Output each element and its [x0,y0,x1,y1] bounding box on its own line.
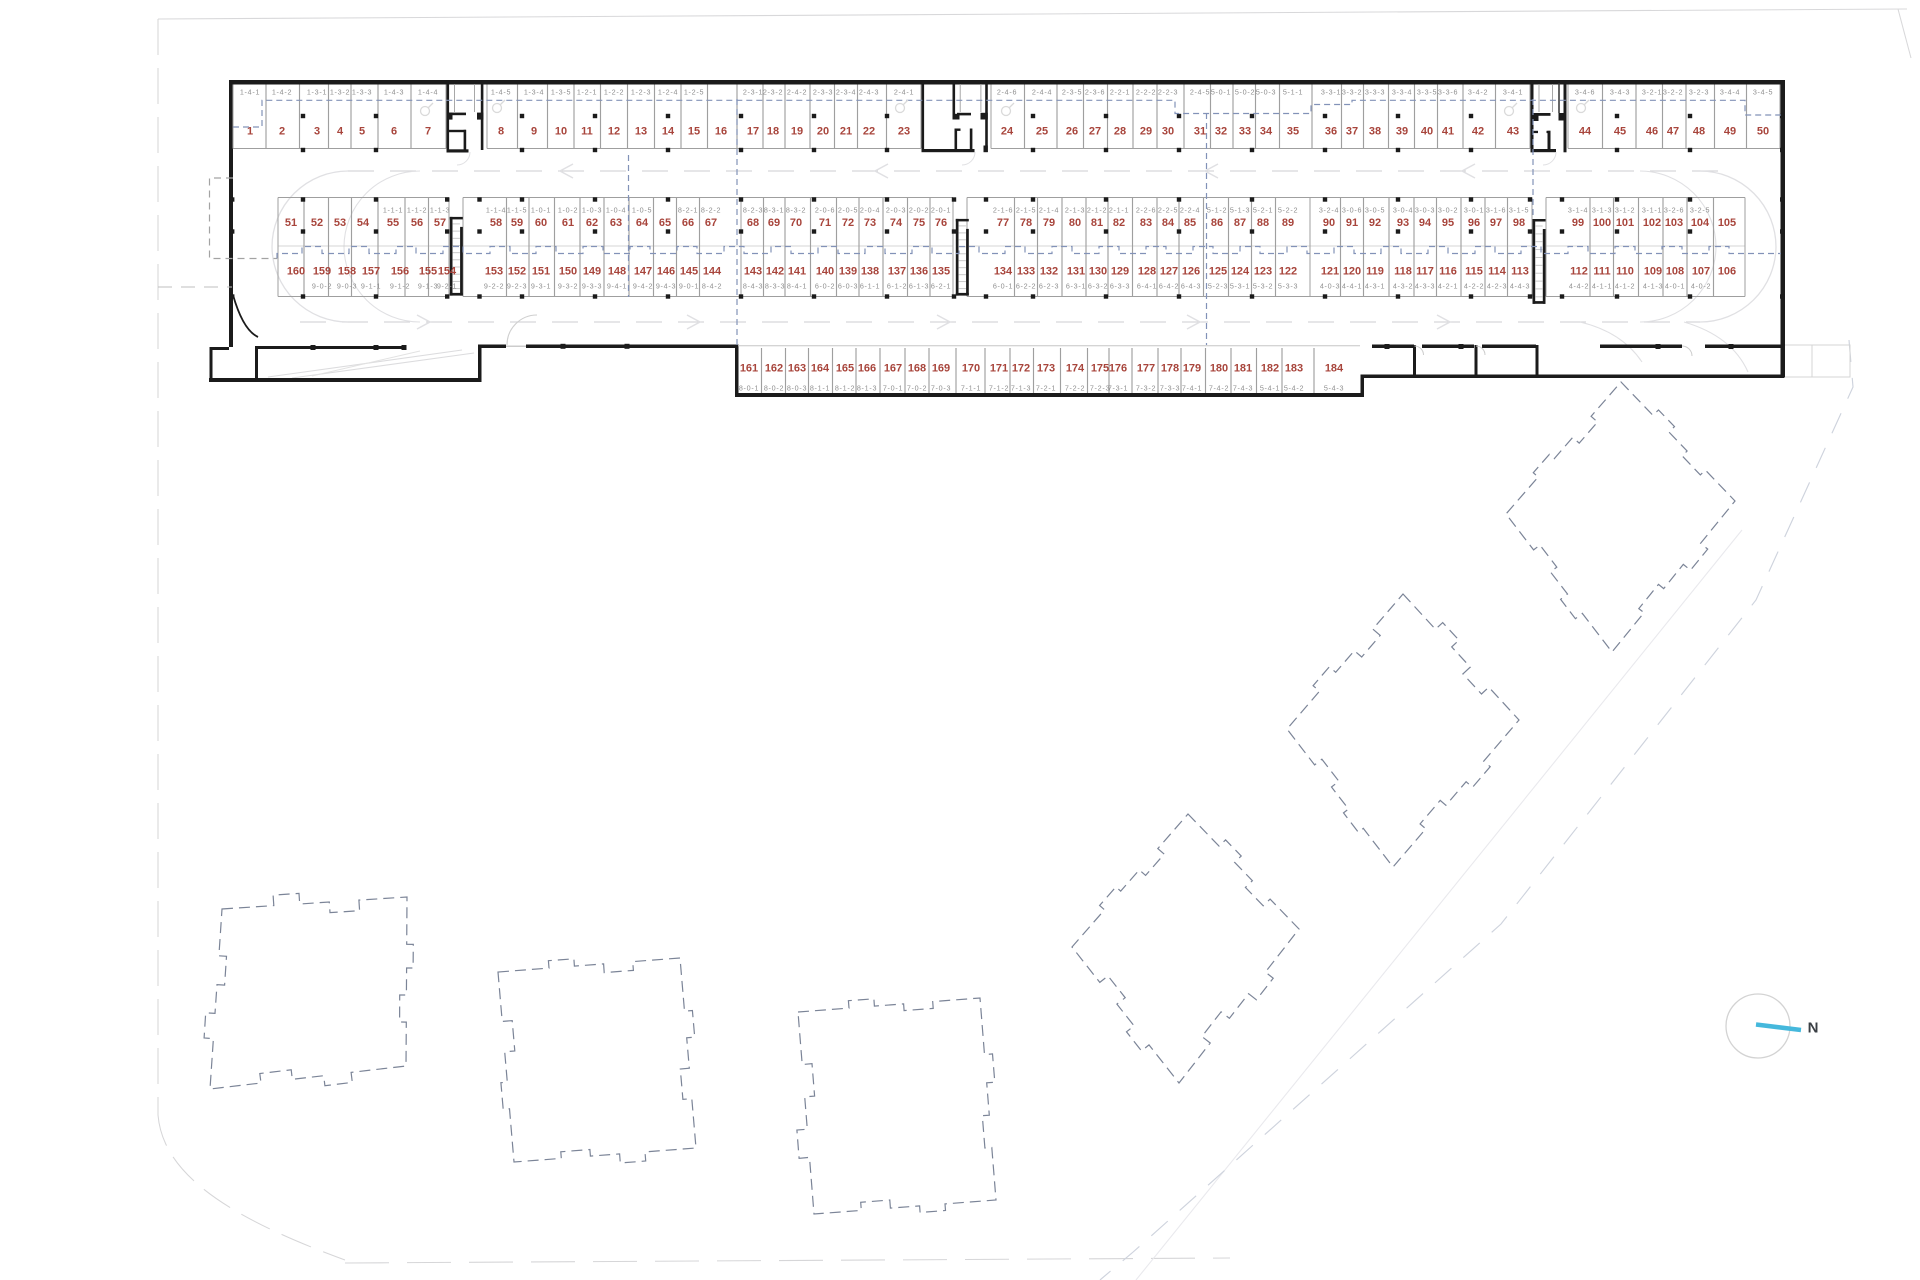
svg-text:141: 141 [788,266,806,278]
svg-text:5-2-2: 5-2-2 [1278,206,1298,215]
svg-text:7-0-1: 7-0-1 [883,384,903,393]
svg-text:7-0-2: 7-0-2 [907,384,927,393]
svg-text:5-3-1: 5-3-1 [1230,282,1250,291]
svg-text:9-2-1: 9-2-1 [437,282,457,291]
svg-text:3-3-3: 3-3-3 [1365,88,1385,97]
svg-text:6-1-1: 6-1-1 [860,282,880,291]
svg-text:106: 106 [1718,266,1736,278]
svg-text:4-1-3: 4-1-3 [1643,282,1663,291]
svg-text:2-3-3: 2-3-3 [813,88,833,97]
svg-text:3-3-1: 3-3-1 [1321,88,1341,97]
svg-text:1-4-1: 1-4-1 [240,88,260,97]
svg-text:9-0-3: 9-0-3 [337,282,357,291]
svg-text:2-4-4: 2-4-4 [1032,88,1052,97]
svg-text:103: 103 [1665,217,1683,229]
svg-text:89: 89 [1282,217,1294,229]
svg-text:1-0-1: 1-0-1 [531,206,551,215]
svg-text:112: 112 [1570,266,1588,278]
svg-text:8-0-3: 8-0-3 [787,384,807,393]
svg-text:6-3-2: 6-3-2 [1088,282,1108,291]
svg-text:6-3-3: 6-3-3 [1110,282,1130,291]
svg-text:3-4-4: 3-4-4 [1720,88,1740,97]
svg-text:170: 170 [962,363,980,375]
svg-text:7-4-3: 7-4-3 [1233,384,1253,393]
svg-text:63: 63 [610,217,622,229]
svg-text:28: 28 [1114,126,1126,138]
svg-text:101: 101 [1616,217,1634,229]
svg-text:3-3-6: 3-3-6 [1438,88,1458,97]
svg-text:24: 24 [1001,126,1014,138]
svg-text:1-4-2: 1-4-2 [272,88,292,97]
svg-text:143: 143 [744,266,762,278]
svg-text:131: 131 [1067,266,1085,278]
svg-text:7-4-2: 7-4-2 [1209,384,1229,393]
svg-text:4-4-2: 4-4-2 [1569,282,1589,291]
svg-text:56: 56 [411,217,423,229]
svg-text:6: 6 [391,126,397,138]
svg-text:32: 32 [1215,126,1227,138]
svg-text:2-3-2: 2-3-2 [763,88,783,97]
svg-text:124: 124 [1231,266,1250,278]
svg-text:164: 164 [811,363,830,375]
svg-text:148: 148 [608,266,626,278]
svg-text:2-3-6: 2-3-6 [1085,88,1105,97]
svg-text:153: 153 [485,266,503,278]
svg-text:3-4-6: 3-4-6 [1575,88,1595,97]
svg-text:10: 10 [555,126,567,138]
svg-text:3-1-1: 3-1-1 [1642,206,1662,215]
svg-text:12: 12 [608,126,620,138]
svg-text:6-4-2: 6-4-2 [1159,282,1179,291]
svg-text:92: 92 [1369,217,1381,229]
svg-text:4-1-1: 4-1-1 [1592,282,1612,291]
svg-text:2-2-2: 2-2-2 [1136,88,1156,97]
svg-text:7-4-1: 7-4-1 [1182,384,1202,393]
svg-text:48: 48 [1693,126,1705,138]
svg-text:64: 64 [636,217,649,229]
svg-text:2-4-3: 2-4-3 [859,88,879,97]
svg-text:132: 132 [1040,266,1058,278]
svg-text:8-4-2: 8-4-2 [702,282,722,291]
svg-text:6-0-3: 6-0-3 [838,282,858,291]
svg-text:5-0-1: 5-0-1 [1211,88,1231,97]
svg-text:109: 109 [1644,266,1662,278]
svg-text:165: 165 [836,363,854,375]
svg-text:29: 29 [1140,126,1152,138]
svg-text:96: 96 [1468,217,1480,229]
svg-text:116: 116 [1439,266,1457,278]
svg-text:8-1-2: 8-1-2 [835,384,855,393]
svg-text:7-3-3: 7-3-3 [1160,384,1180,393]
svg-text:9-2-2: 9-2-2 [484,282,504,291]
svg-text:1-2-5: 1-2-5 [684,88,704,97]
svg-text:8-2-1: 8-2-1 [678,206,698,215]
svg-text:9-1-2: 9-1-2 [390,282,410,291]
svg-text:100: 100 [1593,217,1611,229]
svg-text:77: 77 [997,217,1009,229]
svg-text:8-4-1: 8-4-1 [787,282,807,291]
svg-text:174: 174 [1066,363,1085,375]
svg-text:11: 11 [581,126,593,138]
svg-text:3-4-3: 3-4-3 [1610,88,1630,97]
svg-text:5-4-2: 5-4-2 [1284,384,1304,393]
svg-text:1-0-2: 1-0-2 [558,206,578,215]
svg-text:3-1-5: 3-1-5 [1509,206,1529,215]
svg-text:84: 84 [1162,217,1175,229]
svg-text:7-1-1: 7-1-1 [961,384,981,393]
svg-text:2-0-3: 2-0-3 [886,206,906,215]
svg-text:59: 59 [511,217,523,229]
svg-text:3-0-1: 3-0-1 [1464,206,1484,215]
svg-text:135: 135 [932,266,950,278]
svg-text:159: 159 [313,266,331,278]
svg-text:5-0-2: 5-0-2 [1235,88,1255,97]
svg-text:81: 81 [1091,217,1103,229]
svg-text:1-1-2: 1-1-2 [407,206,427,215]
svg-text:149: 149 [583,266,601,278]
svg-text:9-0-2: 9-0-2 [312,282,332,291]
svg-text:1-2-3: 1-2-3 [631,88,651,97]
svg-text:4-4-3: 4-4-3 [1510,282,1530,291]
svg-text:3-2-2: 3-2-2 [1663,88,1683,97]
svg-text:113: 113 [1511,266,1529,278]
svg-text:157: 157 [362,266,380,278]
svg-text:2-4-1: 2-4-1 [894,88,914,97]
svg-text:1-3-5: 1-3-5 [551,88,571,97]
svg-text:4-0-3: 4-0-3 [1320,282,1340,291]
svg-text:122: 122 [1279,266,1297,278]
svg-text:137: 137 [888,266,906,278]
svg-text:158: 158 [338,266,356,278]
svg-text:120: 120 [1343,266,1361,278]
svg-text:178: 178 [1161,363,1179,375]
svg-text:43: 43 [1507,126,1519,138]
svg-text:104: 104 [1691,217,1710,229]
svg-text:99: 99 [1572,217,1584,229]
svg-text:179: 179 [1183,363,1201,375]
svg-text:93: 93 [1397,217,1409,229]
svg-text:7-1-3: 7-1-3 [1011,384,1031,393]
svg-text:163: 163 [788,363,806,375]
svg-text:74: 74 [890,217,903,229]
svg-text:114: 114 [1488,266,1507,278]
svg-text:8-1-3: 8-1-3 [857,384,877,393]
svg-text:127: 127 [1160,266,1178,278]
svg-text:31: 31 [1194,126,1206,138]
svg-text:7: 7 [425,126,431,138]
svg-text:91: 91 [1346,217,1358,229]
svg-text:2-4-6: 2-4-6 [997,88,1017,97]
svg-text:6-1-2: 6-1-2 [887,282,907,291]
svg-text:5-1-3: 5-1-3 [1230,206,1250,215]
svg-text:13: 13 [635,126,647,138]
svg-text:9-3-2: 9-3-2 [558,282,578,291]
svg-text:8-1-1: 8-1-1 [810,384,830,393]
svg-text:51: 51 [285,217,297,229]
svg-text:19: 19 [791,126,803,138]
svg-text:60: 60 [535,217,547,229]
svg-text:35: 35 [1287,126,1299,138]
svg-text:1-1-3: 1-1-3 [430,206,450,215]
svg-text:171: 171 [990,363,1008,375]
svg-text:130: 130 [1089,266,1107,278]
svg-text:154: 154 [438,266,457,278]
svg-text:75: 75 [913,217,925,229]
svg-text:162: 162 [765,363,783,375]
svg-text:105: 105 [1718,217,1736,229]
svg-text:86: 86 [1211,217,1223,229]
svg-text:3-2-4: 3-2-4 [1319,206,1339,215]
svg-text:2-0-2: 2-0-2 [909,206,929,215]
svg-text:123: 123 [1254,266,1272,278]
svg-text:2-1-6: 2-1-6 [993,206,1013,215]
svg-text:151: 151 [532,266,550,278]
svg-text:1-3-1: 1-3-1 [307,88,327,97]
svg-text:94: 94 [1419,217,1432,229]
svg-text:46: 46 [1646,126,1658,138]
svg-text:14: 14 [662,126,675,138]
svg-text:70: 70 [790,217,802,229]
svg-text:134: 134 [994,266,1013,278]
svg-text:68: 68 [747,217,759,229]
svg-text:2-2-1: 2-2-1 [1110,88,1130,97]
svg-text:140: 140 [816,266,834,278]
svg-text:39: 39 [1396,126,1408,138]
svg-text:23: 23 [898,126,910,138]
svg-text:4-0-2: 4-0-2 [1691,282,1711,291]
svg-text:2-4-5: 2-4-5 [1190,88,1210,97]
svg-text:34: 34 [1260,126,1273,138]
svg-text:161: 161 [740,363,758,375]
svg-text:41: 41 [1442,126,1454,138]
svg-text:1-0-3: 1-0-3 [582,206,602,215]
svg-text:1-1-1: 1-1-1 [383,206,403,215]
svg-text:33: 33 [1239,126,1251,138]
svg-text:8-2-3: 8-2-3 [743,206,763,215]
svg-text:9-1-3: 9-1-3 [418,282,438,291]
svg-text:62: 62 [586,217,598,229]
svg-text:5-3-2: 5-3-2 [1253,282,1273,291]
svg-text:2-1-5: 2-1-5 [1016,206,1036,215]
svg-text:2-1-1: 2-1-1 [1109,206,1129,215]
svg-text:182: 182 [1261,363,1279,375]
svg-text:150: 150 [559,266,577,278]
svg-text:1-3-4: 1-3-4 [524,88,544,97]
svg-text:5: 5 [359,126,365,138]
svg-text:6-2-2: 6-2-2 [1016,282,1036,291]
svg-text:79: 79 [1043,217,1055,229]
svg-text:9-3-1: 9-3-1 [531,282,551,291]
svg-text:78: 78 [1020,217,1032,229]
svg-text:3-0-5: 3-0-5 [1365,206,1385,215]
svg-text:1-1-4: 1-1-4 [486,206,506,215]
svg-text:53: 53 [334,217,346,229]
svg-text:7-3-2: 7-3-2 [1136,384,1156,393]
svg-text:5-4-3: 5-4-3 [1324,384,1344,393]
svg-text:118: 118 [1394,266,1412,278]
svg-text:1-2-1: 1-2-1 [577,88,597,97]
svg-text:177: 177 [1137,363,1155,375]
svg-text:45: 45 [1614,126,1626,138]
svg-text:4-3-2: 4-3-2 [1393,282,1413,291]
svg-text:138: 138 [861,266,879,278]
svg-text:2-0-5: 2-0-5 [838,206,858,215]
svg-text:115: 115 [1465,266,1483,278]
svg-text:3-1-2: 3-1-2 [1615,206,1635,215]
svg-text:2-1-2: 2-1-2 [1087,206,1107,215]
svg-text:1-1-5: 1-1-5 [507,206,527,215]
svg-text:8-3-3: 8-3-3 [765,282,785,291]
svg-text:1-4-4: 1-4-4 [418,88,438,97]
svg-text:1-4-5: 1-4-5 [491,88,511,97]
svg-text:8-0-2: 8-0-2 [764,384,784,393]
svg-text:145: 145 [680,266,698,278]
svg-text:1-2-4: 1-2-4 [658,88,678,97]
svg-text:5-3-3: 5-3-3 [1278,282,1298,291]
svg-text:176: 176 [1109,363,1127,375]
svg-text:9-4-3: 9-4-3 [656,282,676,291]
svg-text:4-3-1: 4-3-1 [1365,282,1385,291]
svg-text:82: 82 [1113,217,1125,229]
svg-text:8-4-3: 8-4-3 [743,282,763,291]
svg-text:167: 167 [884,363,902,375]
svg-text:6-4-1: 6-4-1 [1137,282,1157,291]
svg-text:9-0-1: 9-0-1 [679,282,699,291]
svg-text:42: 42 [1472,126,1484,138]
svg-text:22: 22 [863,126,875,138]
svg-text:85: 85 [1184,217,1196,229]
svg-text:3-4-1: 3-4-1 [1503,88,1523,97]
svg-text:3-2-6: 3-2-6 [1664,206,1684,215]
svg-text:3-4-2: 3-4-2 [1468,88,1488,97]
svg-text:30: 30 [1162,126,1174,138]
svg-text:128: 128 [1138,266,1156,278]
svg-text:102: 102 [1643,217,1661,229]
svg-text:2-2-3: 2-2-3 [1158,88,1178,97]
svg-text:144: 144 [703,266,722,278]
svg-text:6-0-2: 6-0-2 [815,282,835,291]
svg-text:2-2-5: 2-2-5 [1158,206,1178,215]
svg-text:119: 119 [1366,266,1384,278]
svg-text:3-0-2: 3-0-2 [1438,206,1458,215]
svg-text:4-2-3: 4-2-3 [1487,282,1507,291]
svg-text:129: 129 [1111,266,1129,278]
svg-text:5-4-1: 5-4-1 [1260,384,1280,393]
svg-text:71: 71 [819,217,831,229]
svg-text:25: 25 [1036,126,1048,138]
svg-text:8-0-1: 8-0-1 [739,384,759,393]
svg-text:3: 3 [314,126,320,138]
svg-text:3-0-3: 3-0-3 [1415,206,1435,215]
svg-text:2-2-6: 2-2-6 [1136,206,1156,215]
svg-text:27: 27 [1089,126,1101,138]
svg-text:126: 126 [1182,266,1200,278]
svg-text:9-1-1: 9-1-1 [361,282,381,291]
svg-text:88: 88 [1257,217,1269,229]
svg-text:18: 18 [767,126,779,138]
svg-text:2-1-4: 2-1-4 [1039,206,1059,215]
svg-text:55: 55 [387,217,399,229]
svg-text:1: 1 [247,126,253,138]
svg-text:50: 50 [1757,126,1769,138]
svg-text:61: 61 [562,217,574,229]
svg-text:142: 142 [766,266,784,278]
svg-text:3-4-5: 3-4-5 [1753,88,1773,97]
svg-text:3-1-3: 3-1-3 [1592,206,1612,215]
svg-text:95: 95 [1442,217,1454,229]
svg-text:169: 169 [932,363,950,375]
svg-text:183: 183 [1285,363,1303,375]
svg-text:7-2-1: 7-2-1 [1036,384,1056,393]
svg-text:8-3-1: 8-3-1 [764,206,784,215]
svg-text:54: 54 [357,217,370,229]
svg-text:184: 184 [1325,363,1344,375]
svg-text:7-0-3: 7-0-3 [931,384,951,393]
svg-text:172: 172 [1012,363,1030,375]
svg-text:111: 111 [1593,266,1610,278]
svg-text:73: 73 [864,217,876,229]
svg-text:181: 181 [1234,363,1252,375]
svg-text:38: 38 [1369,126,1381,138]
svg-text:52: 52 [311,217,323,229]
svg-text:7-3-1: 7-3-1 [1108,384,1128,393]
svg-text:97: 97 [1490,217,1502,229]
svg-text:156: 156 [391,266,409,278]
svg-text:26: 26 [1066,126,1078,138]
svg-text:125: 125 [1209,266,1227,278]
svg-text:2-0-1: 2-0-1 [931,206,951,215]
svg-text:90: 90 [1323,217,1335,229]
svg-text:66: 66 [682,217,694,229]
svg-text:6-4-3: 6-4-3 [1181,282,1201,291]
svg-text:3-0-4: 3-0-4 [1393,206,1413,215]
svg-text:5-0-3: 5-0-3 [1256,88,1276,97]
svg-text:N: N [1808,1020,1819,1037]
svg-text:47: 47 [1667,126,1679,138]
svg-text:2-2-4: 2-2-4 [1180,206,1200,215]
svg-text:110: 110 [1616,266,1634,278]
svg-text:136: 136 [910,266,928,278]
svg-text:4-3-3: 4-3-3 [1415,282,1435,291]
svg-text:76: 76 [935,217,947,229]
svg-text:3-1-6: 3-1-6 [1486,206,1506,215]
svg-text:152: 152 [508,266,526,278]
svg-text:20: 20 [817,126,829,138]
svg-text:16: 16 [715,126,727,138]
svg-text:9-2-3: 9-2-3 [507,282,527,291]
svg-text:21: 21 [840,126,852,138]
svg-text:9: 9 [531,126,537,138]
svg-text:49: 49 [1724,126,1736,138]
svg-text:72: 72 [842,217,854,229]
svg-text:7-2-2: 7-2-2 [1065,384,1085,393]
svg-text:3-3-2: 3-3-2 [1342,88,1362,97]
svg-text:4-4-1: 4-4-1 [1342,282,1362,291]
svg-text:168: 168 [908,363,926,375]
svg-text:8-3-2: 8-3-2 [786,206,806,215]
svg-text:173: 173 [1037,363,1055,375]
svg-text:139: 139 [839,266,857,278]
svg-text:6-2-1: 6-2-1 [931,282,951,291]
svg-text:44: 44 [1579,126,1592,138]
svg-text:147: 147 [634,266,652,278]
svg-text:8: 8 [498,126,504,138]
svg-text:6-2-3: 6-2-3 [1039,282,1059,291]
svg-text:5-2-3: 5-2-3 [1208,282,1228,291]
svg-text:1-0-5: 1-0-5 [632,206,652,215]
svg-text:83: 83 [1140,217,1152,229]
svg-text:3-3-5: 3-3-5 [1417,88,1437,97]
